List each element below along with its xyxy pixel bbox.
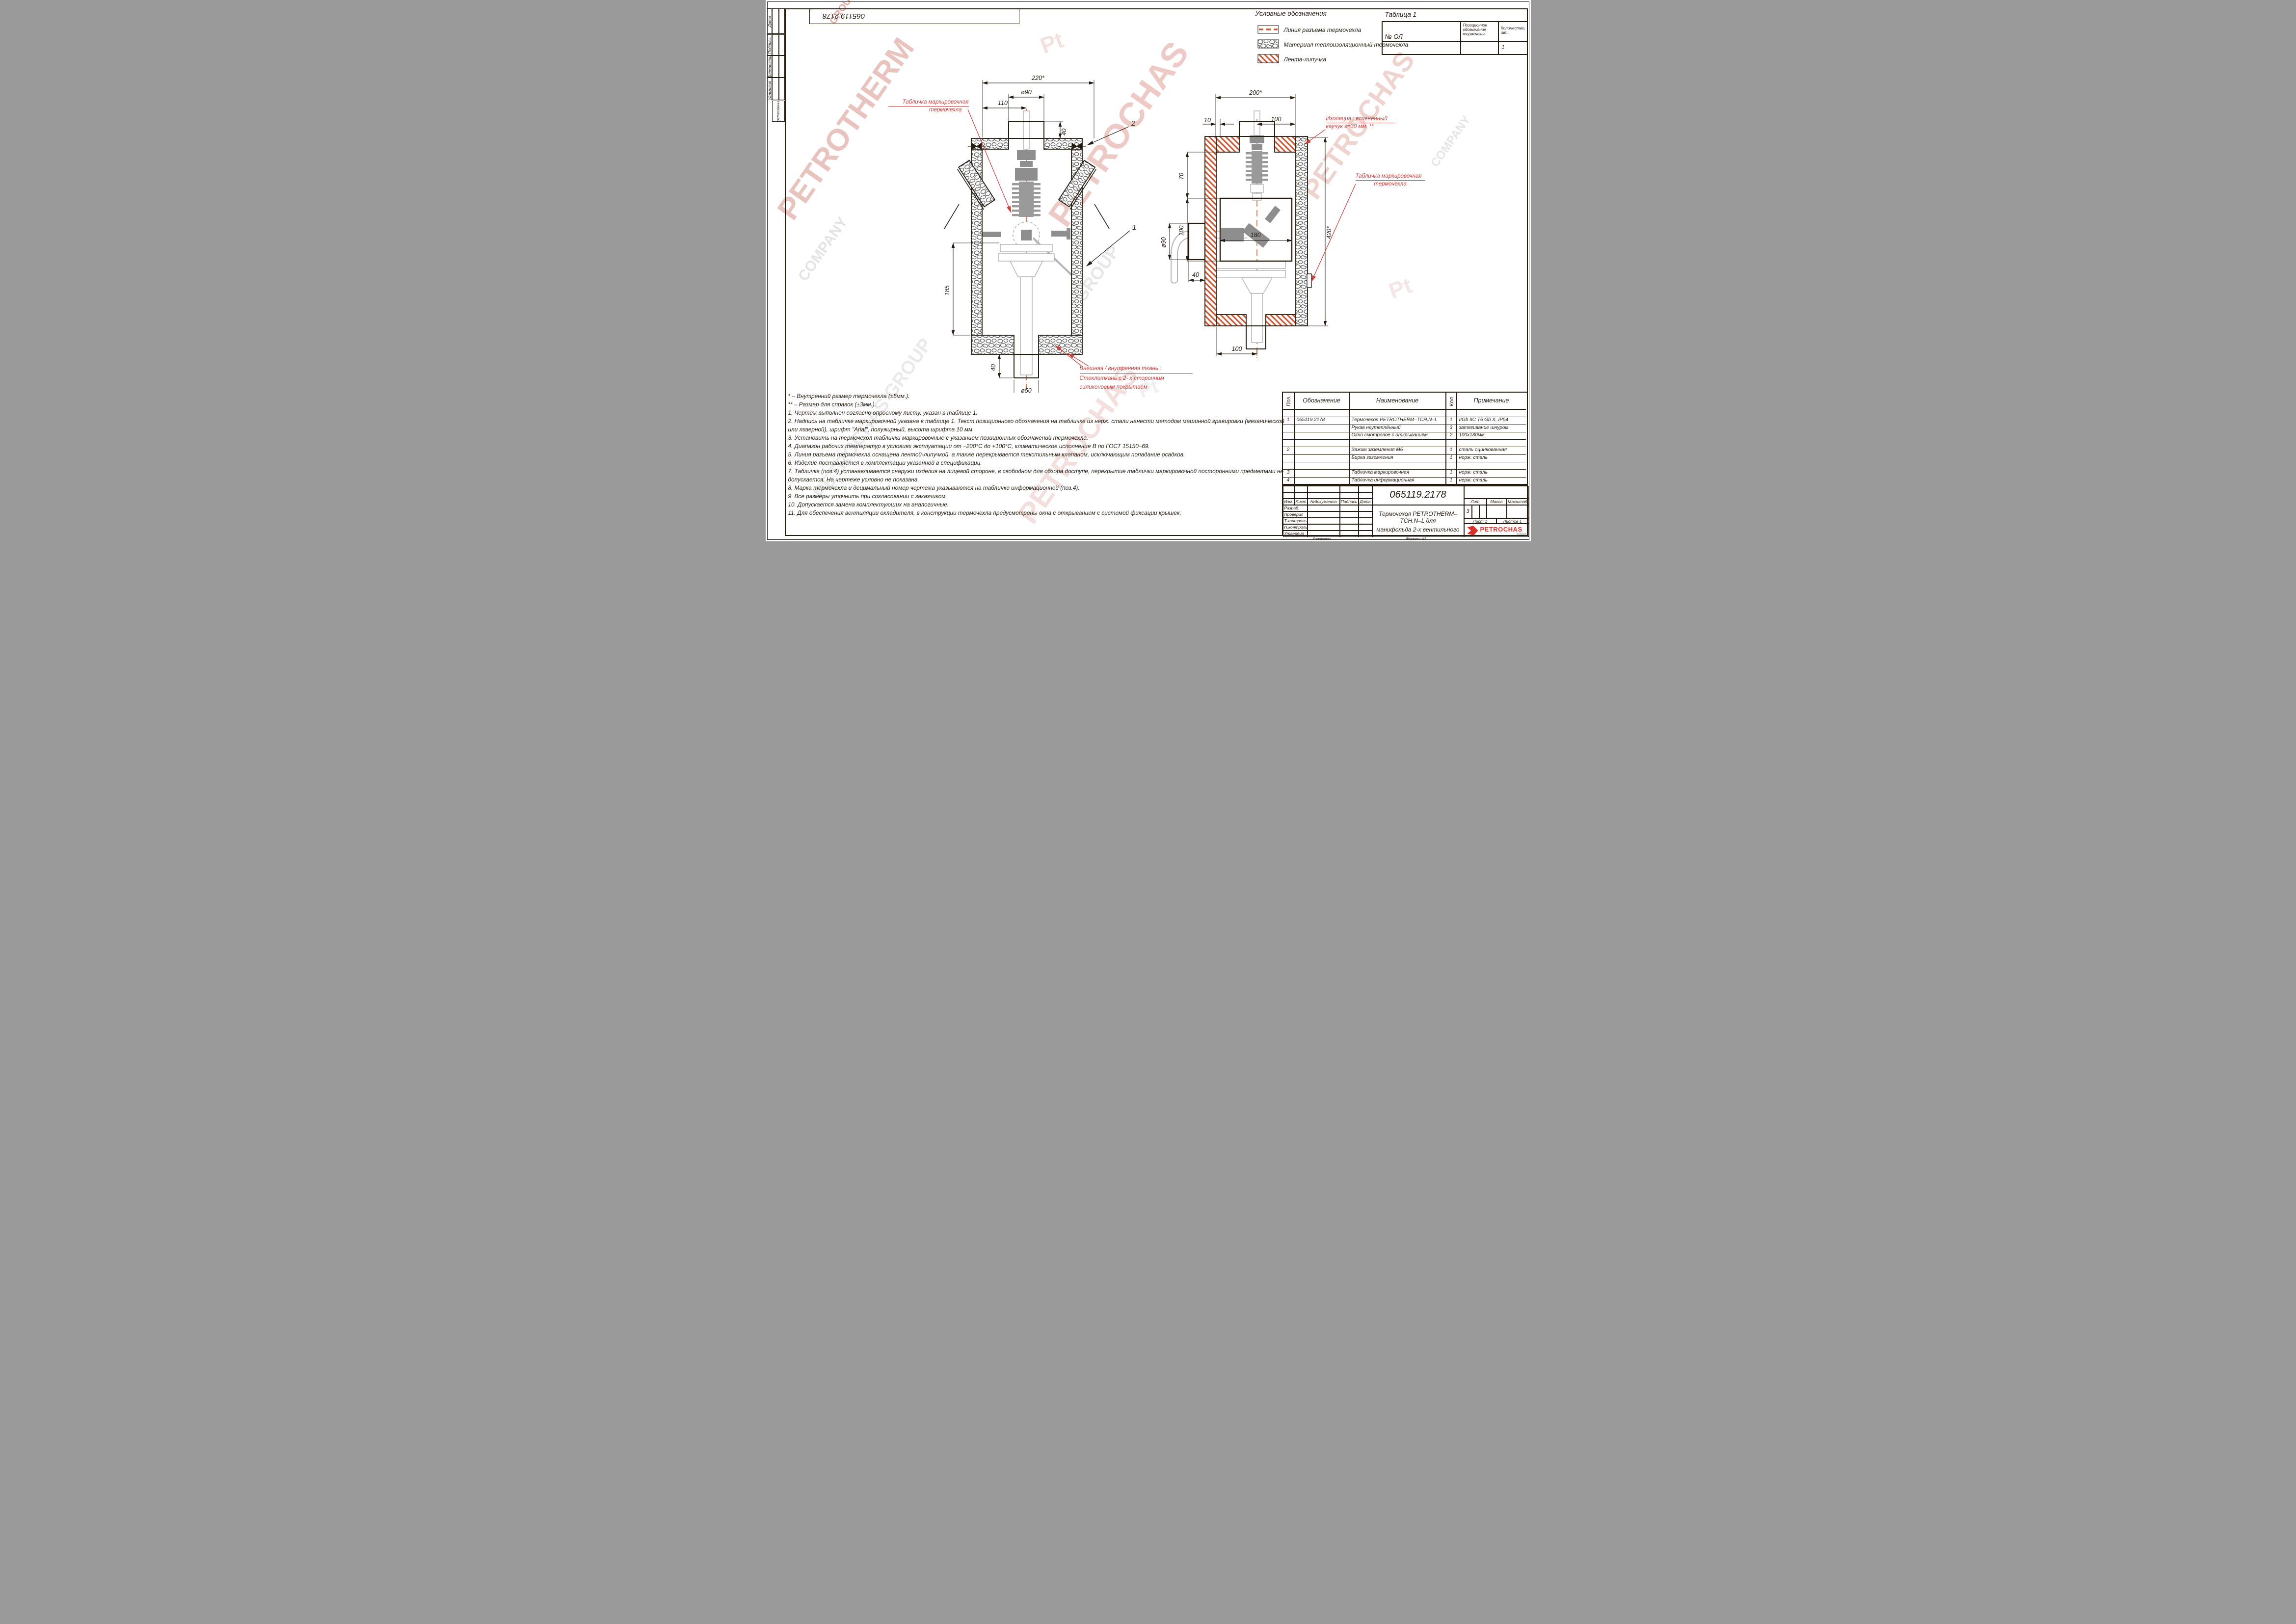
tb-role-proveril: Проверил xyxy=(1283,511,1308,518)
spec-header-note: Примечание xyxy=(1457,393,1526,410)
spec-cell xyxy=(1295,425,1350,432)
dim-d90: ø90 xyxy=(1021,89,1032,96)
dim-185: 185 xyxy=(944,286,951,296)
spec-cell: Рукав неутеплённый xyxy=(1350,425,1446,432)
tb-cell xyxy=(1283,492,1295,499)
dim-40: 40 xyxy=(1192,271,1199,278)
spec-cell xyxy=(1457,410,1526,417)
petrochas-logo-mark-icon xyxy=(1468,526,1478,535)
sidebar-cell-dolzhnost: Должность xyxy=(767,55,772,78)
note-line: 4. Диапазон рабочих температур в условия… xyxy=(788,442,1279,451)
spec-cell: 2 xyxy=(1283,447,1295,454)
callout-1-leader xyxy=(1087,231,1130,266)
note-line: 10. Допускается замена комплектующих на … xyxy=(788,501,1279,509)
spec-cell: Окно смотровое с открыванием xyxy=(1350,432,1446,440)
sidebar-cell-data: Дата xyxy=(767,8,772,34)
spec-cell: 065119.2178 xyxy=(1295,417,1350,425)
tb-cell xyxy=(1308,486,1340,492)
tb-cell xyxy=(1507,505,1529,518)
tb-role-razrab: Разраб. xyxy=(1283,505,1308,511)
spec-cell xyxy=(1457,462,1526,470)
dim-200: 200* xyxy=(1249,89,1262,96)
tb-cell xyxy=(1479,505,1487,518)
dim-10: 10 xyxy=(1204,117,1211,124)
dim-180: 180 xyxy=(1250,232,1260,239)
tb-cell xyxy=(1295,486,1308,492)
tb-doc-number-cell: 065119.2178 xyxy=(1372,486,1464,505)
projection-views: 220* ø90 110 40 185 40 ø50 2 1 xyxy=(785,64,1433,393)
note-line: 8. Марка термочехла и децимальный номер … xyxy=(788,484,1279,492)
tb-role-utverdil: Утвердил xyxy=(1283,531,1308,537)
top-doc-number-box: 065119.2178 xyxy=(809,8,1019,24)
tb-cell xyxy=(1308,505,1340,511)
sidebar-label-data: Дата xyxy=(767,13,772,30)
spec-cell xyxy=(1295,478,1350,485)
spec-cell: IIGb IIC T6 Gb X, IP54 xyxy=(1457,417,1526,425)
sidebar-cell xyxy=(779,55,785,78)
tb-col-izm: Изм. xyxy=(1283,499,1295,505)
tb-cell xyxy=(1283,486,1295,492)
spec-cell xyxy=(1350,440,1446,447)
tb-cell xyxy=(1340,518,1359,524)
spec-cell xyxy=(1295,455,1350,462)
note-line: допускается. На чертеже условно не показ… xyxy=(788,476,1279,484)
tb-lit-value: 3 xyxy=(1464,505,1472,518)
table1: № ОЛ Позиционное обозначение термочехла … xyxy=(1382,21,1528,55)
spec-cell: 1 xyxy=(1446,455,1457,462)
spec-cell: 1 xyxy=(1446,417,1457,425)
spec-cell: Табличка информационная xyxy=(1350,478,1446,485)
tb-cell xyxy=(1340,524,1359,531)
legend-title: Условные обозначения xyxy=(1255,10,1327,17)
spec-cell: Термочехол PETROTHERM–TCH.N–L xyxy=(1350,417,1446,425)
tb-cell xyxy=(1359,486,1372,492)
sidebar-cell xyxy=(779,78,785,100)
dim-110: 110 xyxy=(998,100,1008,106)
velcro-swatch-icon xyxy=(1257,54,1279,63)
spec-cell: 1 xyxy=(1283,417,1295,425)
spec-cell: сталь оцинкованная xyxy=(1457,447,1526,454)
table1-col-qty-header: Количество, шт. xyxy=(1499,22,1527,42)
dim-220: 220* xyxy=(1031,75,1045,81)
sidebar-cell xyxy=(779,8,785,34)
drawing-sheet: GROUP PETROTHERM COMPANY PETROCHAS GROUP… xyxy=(766,0,1531,541)
marking-plate-leader-right xyxy=(1311,184,1356,282)
spec-cell xyxy=(1283,462,1295,470)
legend-item-label: Линия разъема термочехла xyxy=(1284,27,1362,33)
tb-cell xyxy=(1487,505,1507,518)
spec-cell: затягивание шнуром xyxy=(1457,425,1526,432)
spec-cell: 1 xyxy=(1446,470,1457,477)
tb-logo-cell: PETROCHAS ЗАВОД xyxy=(1464,524,1529,537)
tb-scale-label: Масштаб xyxy=(1507,499,1529,505)
tb-cell xyxy=(1340,511,1359,518)
tb-cell xyxy=(1340,486,1359,492)
spec-cell xyxy=(1283,455,1295,462)
insulation-label: Изоляция : вспененный каучук s=30 мм. ** xyxy=(1326,115,1395,130)
spec-cell: нерж. сталь xyxy=(1457,455,1526,462)
table1-row-qty: 1 xyxy=(1502,44,1505,50)
tb-col-podpis: Подпись xyxy=(1340,499,1359,505)
spec-cell xyxy=(1283,432,1295,440)
tb-cell xyxy=(1359,524,1372,531)
title-block: Изм. Лист №документа Подпись Дата Разраб… xyxy=(1282,485,1528,536)
table1-row-cell xyxy=(1383,42,1461,54)
spec-cell xyxy=(1446,462,1457,470)
spec-cell xyxy=(1350,410,1446,417)
sidebar-cell xyxy=(772,8,779,34)
callout-2: 2 xyxy=(1131,119,1136,128)
tb-cell xyxy=(1359,492,1372,499)
spec-cell xyxy=(1295,410,1350,417)
dim-100-side: 100 xyxy=(1178,226,1185,236)
dim-70: 70 xyxy=(1178,173,1185,180)
tb-title-line2: манифольда 2-х вентильного xyxy=(1373,524,1464,533)
tb-lit-label: Лит xyxy=(1464,499,1487,505)
spec-cell xyxy=(1350,462,1446,470)
fabric-label: Внешняя / внутренняя ткань : Стеклоткань… xyxy=(1080,364,1193,392)
petrochas-logo-bars xyxy=(1481,533,1506,537)
sidebar-cell xyxy=(772,55,779,78)
tb-role-nkontrol: Н.контроль xyxy=(1283,524,1308,531)
spec-cell: 2 xyxy=(1446,432,1457,440)
tb-title-line1: Термочехол PETROTHERM–TCH.N–L для xyxy=(1373,506,1464,524)
top-doc-number: 065119.2178 xyxy=(812,12,876,20)
flap-rod-right xyxy=(1095,204,1109,229)
note-line: 5. Линия разъема термочехла оснащена лен… xyxy=(788,451,1279,459)
note-line: 6. Изделие поставляется в комплектации у… xyxy=(788,459,1279,467)
note-line: 11. Для обеспечения вентиляции охладител… xyxy=(788,509,1279,517)
tb-mass-label: Масса xyxy=(1487,499,1507,505)
sidebar-cell-soglasovanie: Согласование xyxy=(772,101,785,122)
petrochas-logo-text: PETROCHAS xyxy=(1480,526,1522,533)
parting-line-swatch-icon xyxy=(1257,25,1279,34)
spec-cell: Табличка маркировочная xyxy=(1350,470,1446,477)
spec-cell: 100х180мм. xyxy=(1457,432,1526,440)
note-line: * – Внутренний размер термочехла (±5мм.)… xyxy=(788,392,1279,400)
table1-title: Таблица 1 xyxy=(1385,11,1417,18)
spec-cell xyxy=(1283,440,1295,447)
spec-cell: нерж. сталь xyxy=(1457,470,1526,477)
spec-cell xyxy=(1295,470,1350,477)
tb-title-cell: Термочехол PETROTHERM–TCH.N–L для манифо… xyxy=(1372,505,1464,537)
dim-d90: ø90 xyxy=(1160,237,1167,248)
tb-sheet: Лист 1 xyxy=(1464,518,1496,524)
spec-header-pos: Поз. xyxy=(1283,393,1295,410)
tb-cell xyxy=(1308,492,1340,499)
sidebar-cell-podpis: Подпись xyxy=(767,34,772,55)
callout-1: 1 xyxy=(1132,223,1136,232)
marking-plate-label-right: Табличка маркировочная термочехла xyxy=(1356,173,1425,187)
note-line: 9. Все размеры уточнить при согласовании… xyxy=(788,492,1279,501)
spec-table: Поз. Обозначение Наименование Кол. Приме… xyxy=(1282,392,1528,485)
notes-block: * – Внутренний размер термочехла (±5мм.)… xyxy=(788,392,1279,517)
tb-sheets: Листов 1 xyxy=(1496,518,1529,524)
tb-cell xyxy=(1359,511,1372,518)
spec-header-designation: Обозначение xyxy=(1295,393,1350,410)
tb-doc-number: 065119.2178 xyxy=(1373,486,1464,501)
spec-cell xyxy=(1446,440,1457,447)
note-line: или лазерной), шрифт "Arial", полужирный… xyxy=(788,426,1279,434)
spec-cell: 1 xyxy=(1446,478,1457,485)
tb-cell xyxy=(1464,486,1529,499)
note-line: 2. Надпись на табличке маркировочной ука… xyxy=(788,417,1279,426)
spec-cell: 3 xyxy=(1283,470,1295,477)
spec-cell xyxy=(1446,410,1457,417)
sidebar-label-familiya: Фамилия xyxy=(767,79,772,100)
tb-cell xyxy=(1340,492,1359,499)
dim-100-bottom: 100 xyxy=(1231,346,1242,352)
tb-cell xyxy=(1340,531,1359,537)
marking-plate xyxy=(1307,274,1311,288)
tb-cell xyxy=(1340,505,1359,511)
tb-cell xyxy=(1308,511,1340,518)
table1-col-pos-header: Позиционное обозначение термочехла xyxy=(1461,22,1499,42)
spec-cell: 1 xyxy=(1446,447,1457,454)
dim-40-top: 40 xyxy=(1061,129,1068,135)
spec-cell xyxy=(1283,410,1295,417)
tb-cell xyxy=(1359,531,1372,537)
spec-cell xyxy=(1295,432,1350,440)
spec-cell xyxy=(1295,447,1350,454)
spec-cell: нерж. сталь xyxy=(1457,478,1526,485)
tb-role-tkontrol: Т.контроль xyxy=(1283,518,1308,524)
tb-cell xyxy=(1472,505,1479,518)
insulation-swatch-icon xyxy=(1257,39,1279,49)
sidebar-label-soglasovanie: Согласование xyxy=(775,101,780,122)
sidebar-label-dolzhnost: Должность xyxy=(767,55,772,78)
tb-col-data: Дата xyxy=(1359,499,1372,505)
spec-cell: Зажим заземления М6 xyxy=(1350,447,1446,454)
marking-plate-label-left: Табличка маркировочная термочехла xyxy=(888,99,969,113)
flap-rod-left xyxy=(944,204,959,229)
left-view: 220* ø90 110 40 185 40 ø50 2 1 xyxy=(944,75,1136,393)
spec-cell xyxy=(1295,440,1350,447)
sidebar-cell xyxy=(772,78,779,100)
table1-row-cell xyxy=(1461,42,1499,54)
tb-cell xyxy=(1359,518,1372,524)
dim-40-bottom: 40 xyxy=(990,364,997,371)
note-line: 3. Установить на термочехол таблички мар… xyxy=(788,434,1279,442)
spec-cell xyxy=(1283,425,1295,432)
sidebar-cell xyxy=(779,34,785,55)
legend-item-label: Лента-липучка xyxy=(1284,56,1327,63)
spec-cell xyxy=(1295,462,1350,470)
spec-header-qty: Кол. xyxy=(1446,393,1457,410)
note-line: ** – Размер для справок (±3мм.). xyxy=(788,400,1279,409)
tb-col-list: Лист xyxy=(1295,499,1308,505)
sidebar-label-podpis: Подпись xyxy=(767,36,772,55)
tb-col-ndoc: №документа xyxy=(1308,499,1340,505)
spec-cell xyxy=(1457,440,1526,447)
dim-100-top: 100 xyxy=(1271,116,1281,123)
tb-cell xyxy=(1359,505,1372,511)
side-port xyxy=(1189,223,1205,260)
format-label: Формат А2 xyxy=(1406,536,1426,541)
spec-cell: 3 xyxy=(1446,425,1457,432)
note-line: 1. Чертёж выполнен согласно опросному ли… xyxy=(788,409,1279,417)
spec-header-name: Наименование xyxy=(1350,393,1446,410)
table1-col-ol-header: № ОЛ xyxy=(1383,22,1461,42)
sidebar-cell-familiya: Фамилия xyxy=(767,78,772,100)
spec-cell: 4 xyxy=(1283,478,1295,485)
petrochas-logo-sub: ЗАВОД xyxy=(1516,533,1526,536)
sidebar-cell xyxy=(772,34,779,55)
note-line: 7. Табличка (поз.4) устанавливается снар… xyxy=(788,467,1279,476)
tb-cell xyxy=(1295,492,1308,499)
spec-cell: Бирка заземления xyxy=(1350,455,1446,462)
tb-cell xyxy=(1308,524,1340,531)
tb-cell xyxy=(1308,518,1340,524)
copied-label: Копировал xyxy=(1313,536,1331,541)
